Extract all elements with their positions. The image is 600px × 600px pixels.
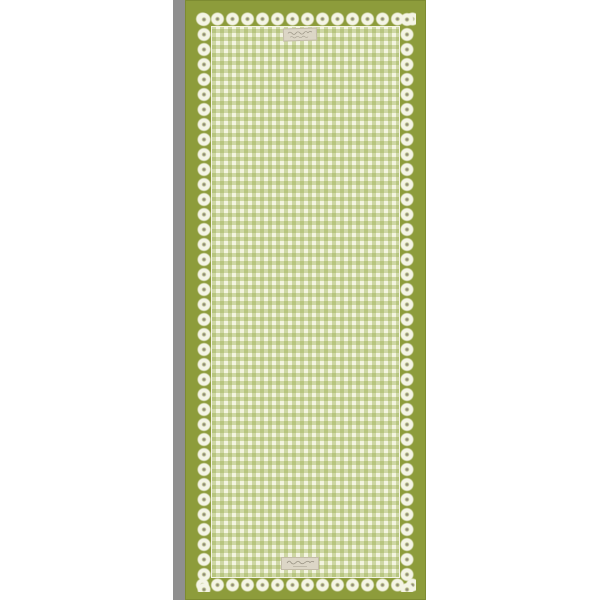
table-runner [185, 0, 426, 600]
lace-trim-top [195, 12, 416, 26]
product-photo [0, 0, 600, 600]
gingham-fabric-field [211, 26, 400, 578]
lace-trim-left [197, 12, 211, 592]
illegible-script-icon [283, 558, 317, 569]
lace-trim-right [400, 12, 414, 592]
brand-tag-bottom [281, 557, 319, 570]
runner-left-shadow [173, 0, 185, 600]
brand-tag-top [283, 27, 317, 41]
illegible-script-icon [285, 28, 315, 40]
lace-trim-bottom [195, 578, 416, 592]
